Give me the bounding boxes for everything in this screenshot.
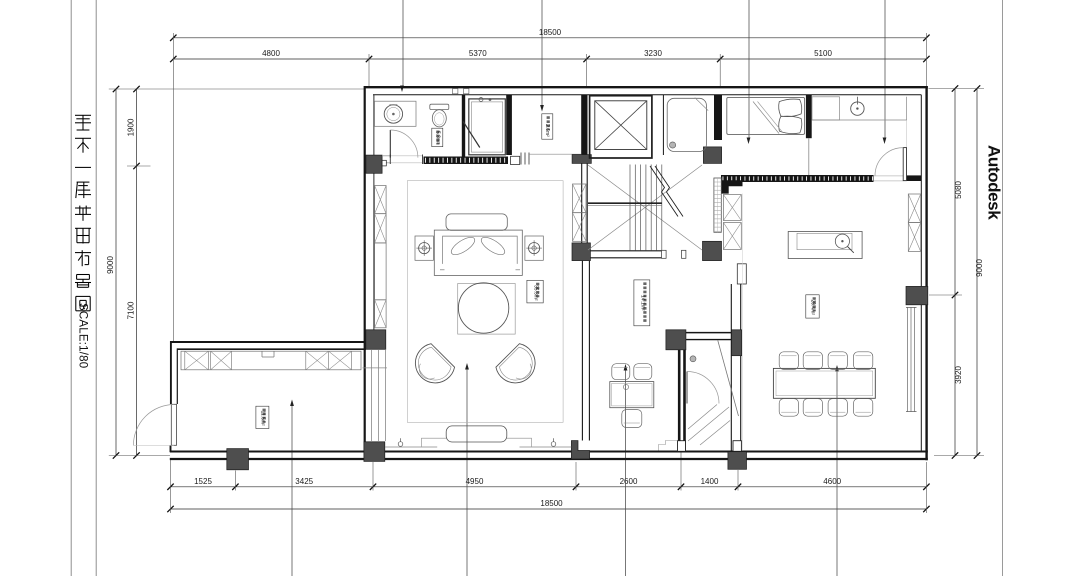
svg-text:4800: 4800 [262,49,280,58]
svg-text:3920: 3920 [954,366,963,384]
svg-text:1525: 1525 [194,477,212,486]
svg-text:5370: 5370 [469,49,487,58]
svg-text:2.6m²: 2.6m² [544,124,550,137]
svg-text:5.3m²: 5.3m² [434,131,440,144]
svg-text:4950: 4950 [466,477,484,486]
svg-text:9000: 9000 [106,256,115,274]
svg-text:3230: 3230 [644,49,662,58]
svg-text:11.5m²: 11.5m² [259,411,265,427]
svg-text:35.3m²: 35.3m² [533,285,539,301]
svg-text:Autodesk: Autodesk [985,145,1004,220]
svg-text:18500: 18500 [540,499,563,508]
svg-text:3425: 3425 [295,477,313,486]
svg-text:1900: 1900 [127,118,136,136]
svg-text:14.1m²: 14.1m² [639,295,645,311]
svg-text:2600: 2600 [620,477,638,486]
svg-text:4600: 4600 [823,477,841,486]
svg-text:9000: 9000 [975,259,984,277]
svg-text:29.4m²: 29.4m² [809,300,815,316]
svg-text:1400: 1400 [701,477,719,486]
svg-text:SCALE:1/80: SCALE:1/80 [77,303,89,368]
svg-text:5080: 5080 [954,181,963,199]
svg-text:5100: 5100 [814,49,832,58]
svg-text:7100: 7100 [127,301,136,319]
